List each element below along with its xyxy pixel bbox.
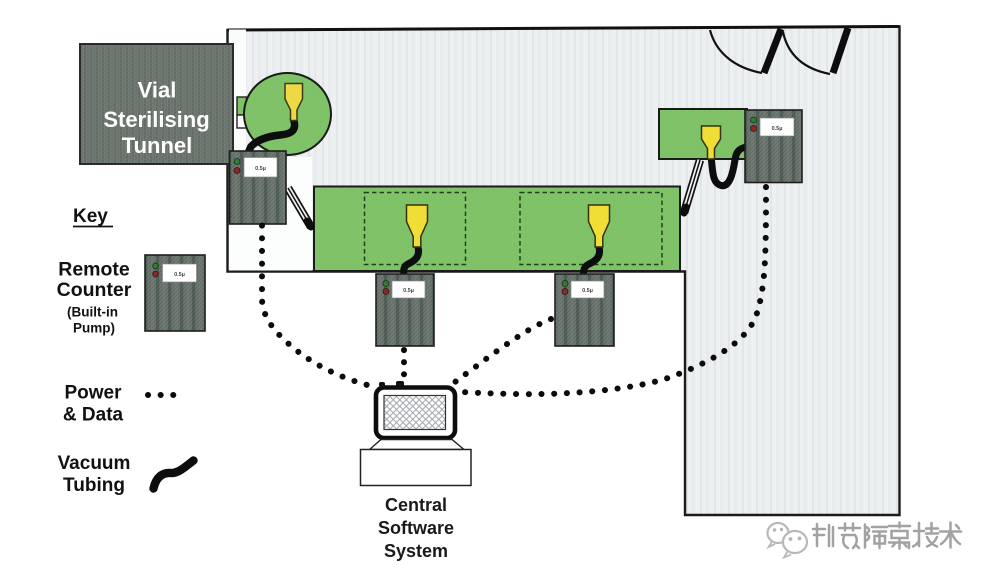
svg-text:0.5µ: 0.5µ — [174, 272, 185, 278]
svg-text:Software: Software — [378, 518, 454, 538]
svg-text:Pump): Pump) — [73, 321, 115, 336]
svg-text:& Data: & Data — [63, 405, 124, 426]
svg-text:Sterilising: Sterilising — [103, 107, 209, 132]
svg-text:0.5µ: 0.5µ — [255, 166, 266, 172]
svg-text:System: System — [384, 541, 448, 561]
svg-text:Power: Power — [64, 383, 122, 404]
svg-text:Central: Central — [385, 495, 447, 515]
svg-text:Vial: Vial — [138, 78, 177, 103]
svg-text:Vacuum: Vacuum — [58, 453, 131, 474]
svg-text:0.5µ: 0.5µ — [582, 288, 593, 294]
svg-text:0.5µ: 0.5µ — [403, 288, 414, 294]
svg-text:Counter: Counter — [57, 279, 132, 301]
svg-text:Tubing: Tubing — [63, 475, 125, 496]
svg-text:(Built-in: (Built-in — [67, 305, 118, 320]
svg-text:Remote: Remote — [58, 259, 130, 281]
svg-text:Tunnel: Tunnel — [122, 133, 192, 158]
svg-text:Key: Key — [73, 206, 108, 227]
svg-text:0.5µ: 0.5µ — [772, 126, 783, 132]
